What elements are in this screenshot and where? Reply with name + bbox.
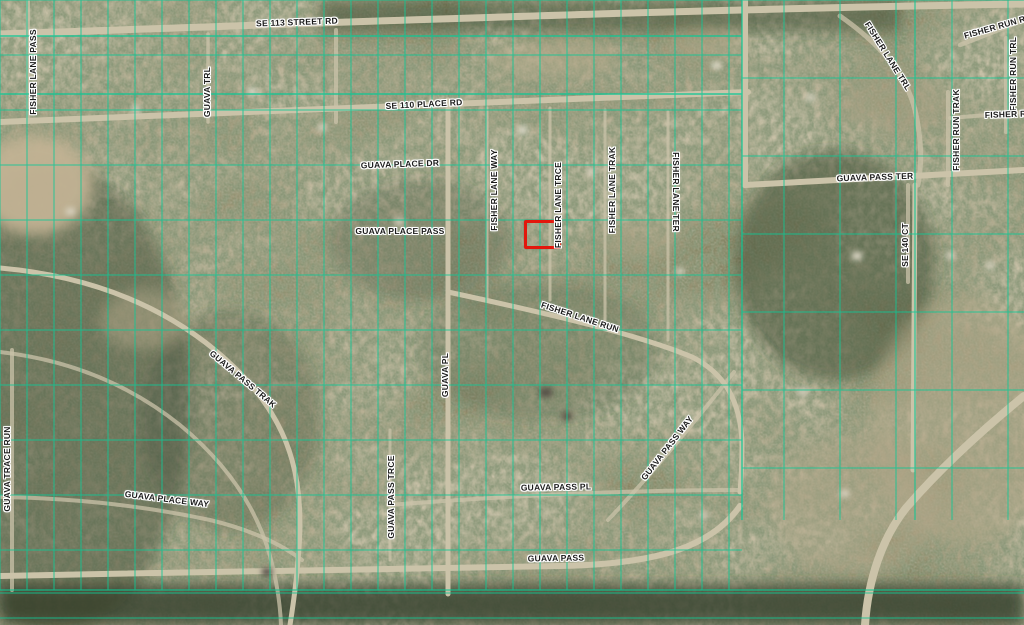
aerial-parcel-map: SE 113 STREET RDSE 110 PLACE RDGUAVA PLA… bbox=[0, 0, 1024, 625]
aerial-basemap bbox=[0, 0, 1024, 625]
highlighted-parcel bbox=[524, 220, 561, 249]
